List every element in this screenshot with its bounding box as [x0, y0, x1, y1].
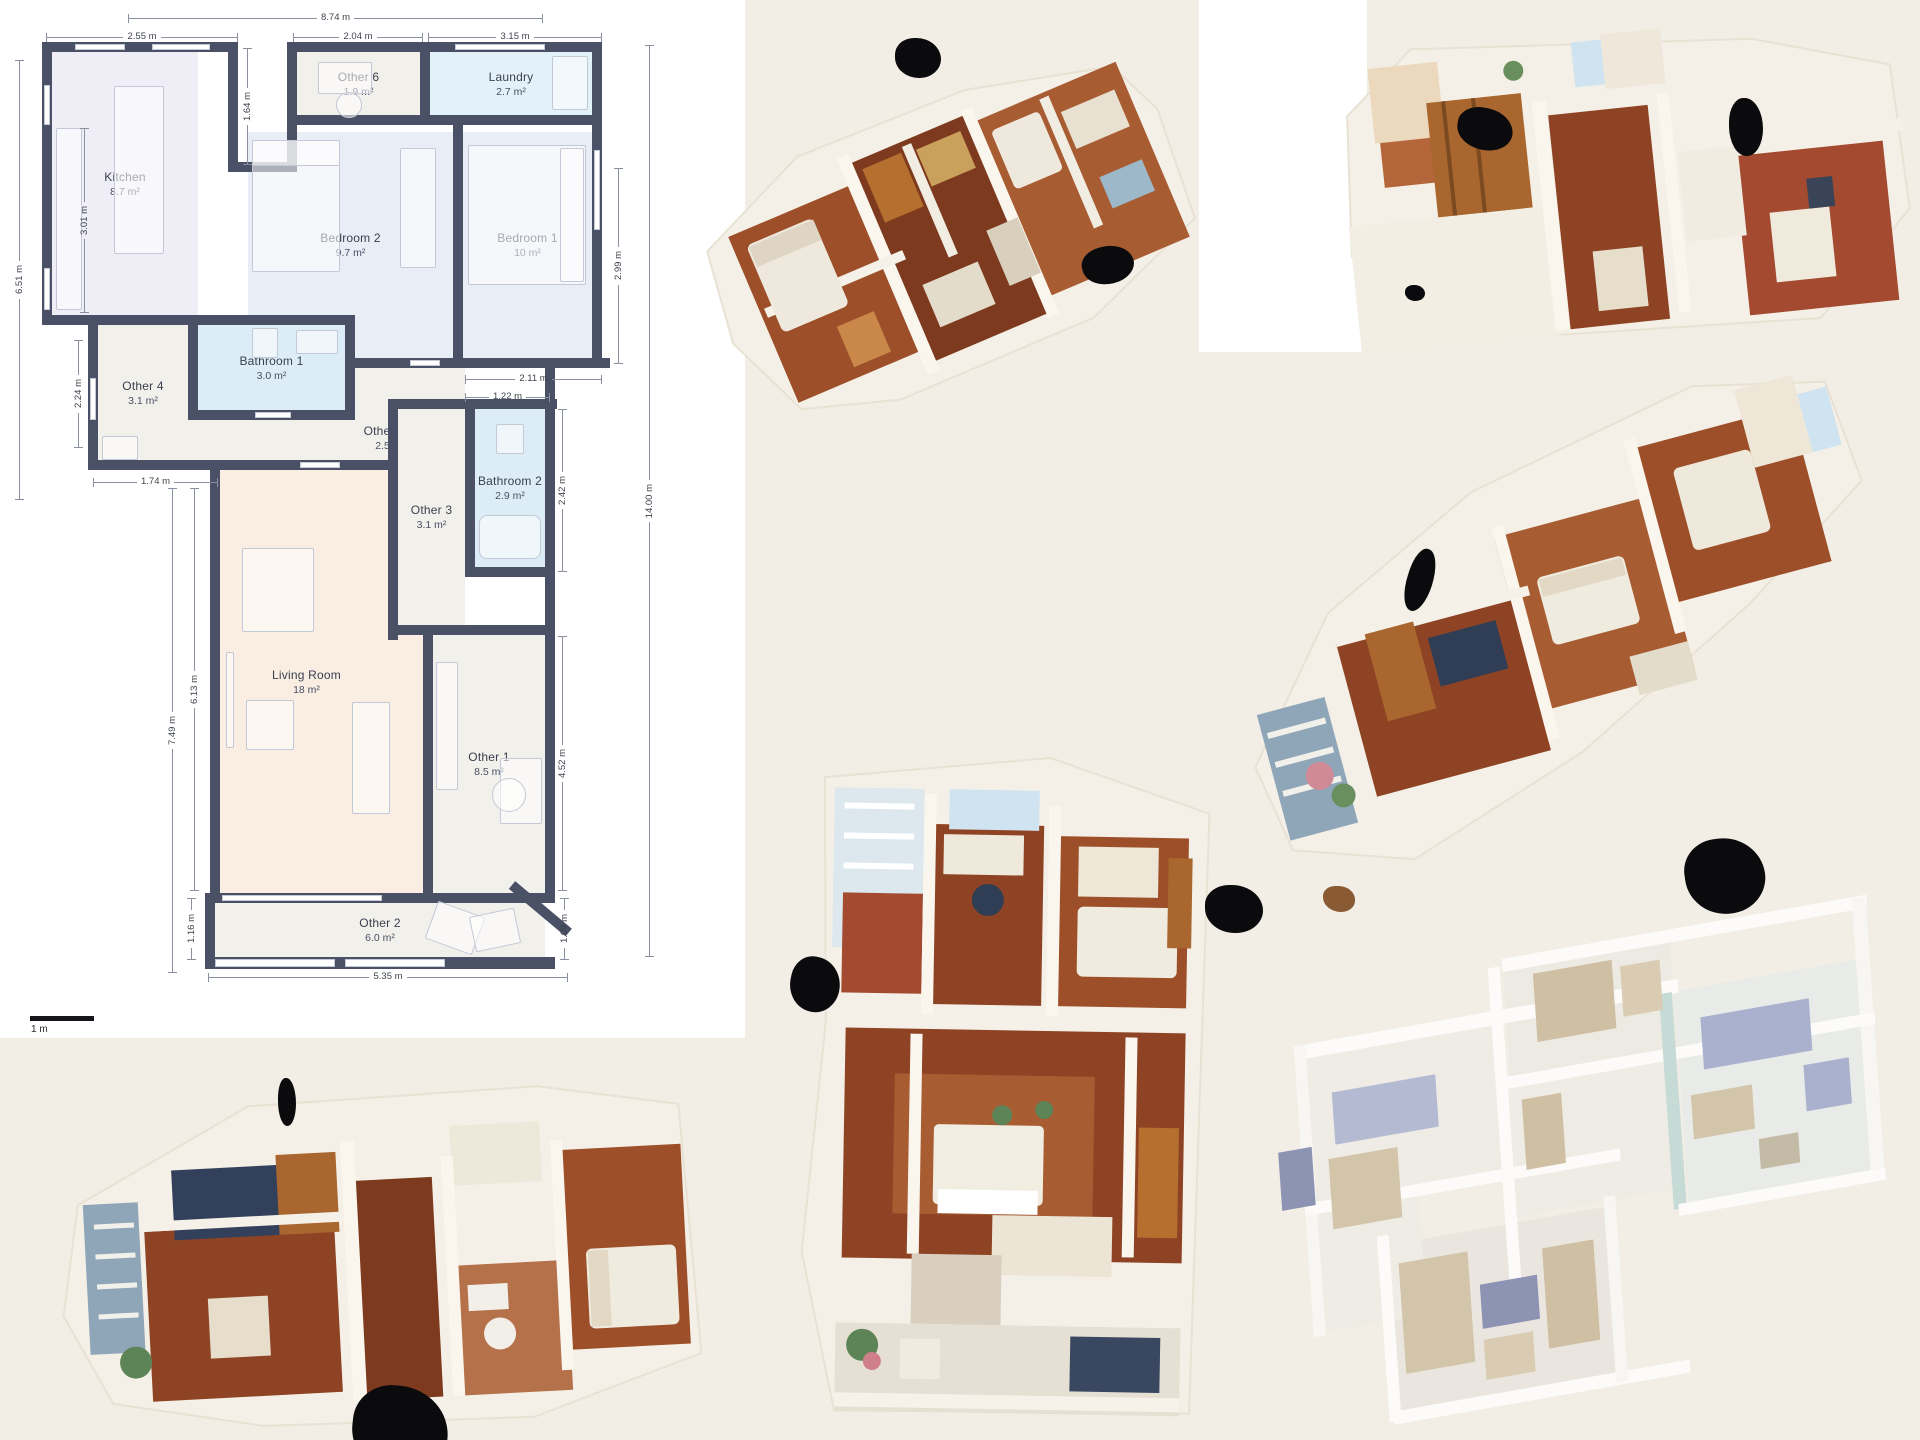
dim-other1-height: 4.52 m	[558, 636, 567, 891]
window	[455, 44, 545, 50]
scan-mid-right-graphic	[1190, 355, 1920, 905]
kitchen-island	[114, 86, 164, 254]
page: Bedroom 2 9.7 m² Bedroom 1 10 m² Kitchen…	[0, 0, 1920, 1440]
window	[44, 268, 50, 310]
scan-artifact	[1405, 285, 1425, 301]
dim-living-height: 6.13 m	[190, 488, 199, 891]
wardrobe	[436, 662, 458, 790]
window	[152, 44, 210, 50]
door-gap	[410, 360, 440, 366]
room-living: Living Room 18 m²	[220, 470, 393, 893]
dim-laundry-width: 3.15 m	[428, 33, 602, 42]
dim-hall-width: 2.11 m	[465, 375, 602, 384]
room-living-extension	[393, 635, 423, 893]
scan-top-right-graphic	[1285, 0, 1920, 355]
wall	[42, 315, 198, 325]
dim-entry-width: 1.74 m	[93, 478, 218, 487]
tv	[226, 652, 234, 748]
desk	[318, 62, 372, 94]
scale-bar-label: 1 m	[31, 1024, 48, 1035]
dim-living-outer-height: 7.49 m	[168, 488, 177, 973]
scan-top-center	[695, 15, 1210, 480]
scale-bar	[30, 1016, 94, 1021]
wall	[388, 403, 398, 640]
dim-left-height: 6.51 m	[15, 60, 24, 500]
dim-kitchen-height: 3.01 m	[80, 128, 89, 313]
wall	[453, 125, 463, 358]
toilet	[252, 328, 278, 358]
wall	[465, 567, 555, 577]
dim-other2-height: 1.16 m	[187, 898, 196, 960]
wall	[228, 42, 238, 172]
wall	[345, 315, 355, 420]
dim-other2-width: 5.35 m	[208, 973, 568, 982]
wall	[88, 460, 398, 470]
armchair	[246, 700, 294, 750]
door-gap	[255, 412, 291, 418]
scan-bottom-left-graphic	[25, 1040, 720, 1440]
cabinet	[102, 436, 138, 460]
scan-artifact	[1729, 98, 1763, 156]
sofa	[352, 702, 390, 814]
dim-bedroom1-height: 2.99 m	[614, 168, 623, 364]
dim-total-height: 14.00 m	[645, 45, 654, 957]
window	[222, 895, 382, 901]
wall	[355, 358, 610, 368]
dim-top-total: 8.74 m	[128, 14, 543, 23]
render-bottom-right	[1245, 890, 1920, 1440]
render-bottom-right-graphic	[1245, 890, 1920, 1440]
dim-other6-width: 2.04 m	[293, 33, 423, 42]
toilet	[496, 424, 524, 454]
wall	[388, 625, 553, 635]
wall	[287, 115, 602, 125]
scan-top-center-graphic	[695, 15, 1210, 480]
sink	[296, 330, 338, 354]
room-other3: Other 3 3.1 m²	[398, 409, 465, 625]
dim-bathroom2-width: 1.22 m	[465, 393, 550, 402]
chair	[492, 778, 526, 812]
dining-table	[242, 548, 314, 632]
dim-other2-right-height: 1.09 m	[560, 898, 569, 960]
dim-bathroom2-height: 2.42 m	[558, 409, 567, 572]
chair	[336, 92, 362, 118]
scan-bottom-center	[745, 695, 1235, 1440]
window	[345, 959, 445, 967]
wall	[210, 460, 220, 903]
window	[75, 44, 125, 50]
bed-pillow	[560, 148, 584, 282]
scan-bottom-left	[25, 1040, 720, 1440]
wall	[188, 315, 355, 325]
dim-other4-height: 2.24 m	[74, 340, 83, 448]
washer	[552, 56, 588, 110]
wall	[423, 630, 433, 903]
bathtub	[479, 515, 541, 559]
door-gap	[300, 462, 340, 468]
wall	[188, 315, 198, 420]
wall	[420, 52, 430, 125]
wardrobe	[400, 148, 436, 268]
scan-top-right	[1285, 0, 1920, 355]
window	[215, 959, 335, 967]
scan-mid-right	[1190, 355, 1920, 905]
bed-pillow	[252, 140, 340, 166]
window	[594, 150, 600, 230]
window	[90, 378, 96, 420]
scan-artifact	[278, 1078, 296, 1126]
window	[44, 85, 50, 125]
dim-notch-height: 1.64 m	[243, 48, 252, 165]
scan-artifact	[895, 38, 941, 78]
scan-bottom-center-graphic	[745, 695, 1235, 1440]
dim-kitchen-width: 2.55 m	[46, 33, 238, 42]
wall	[465, 399, 475, 572]
wall	[287, 42, 602, 52]
